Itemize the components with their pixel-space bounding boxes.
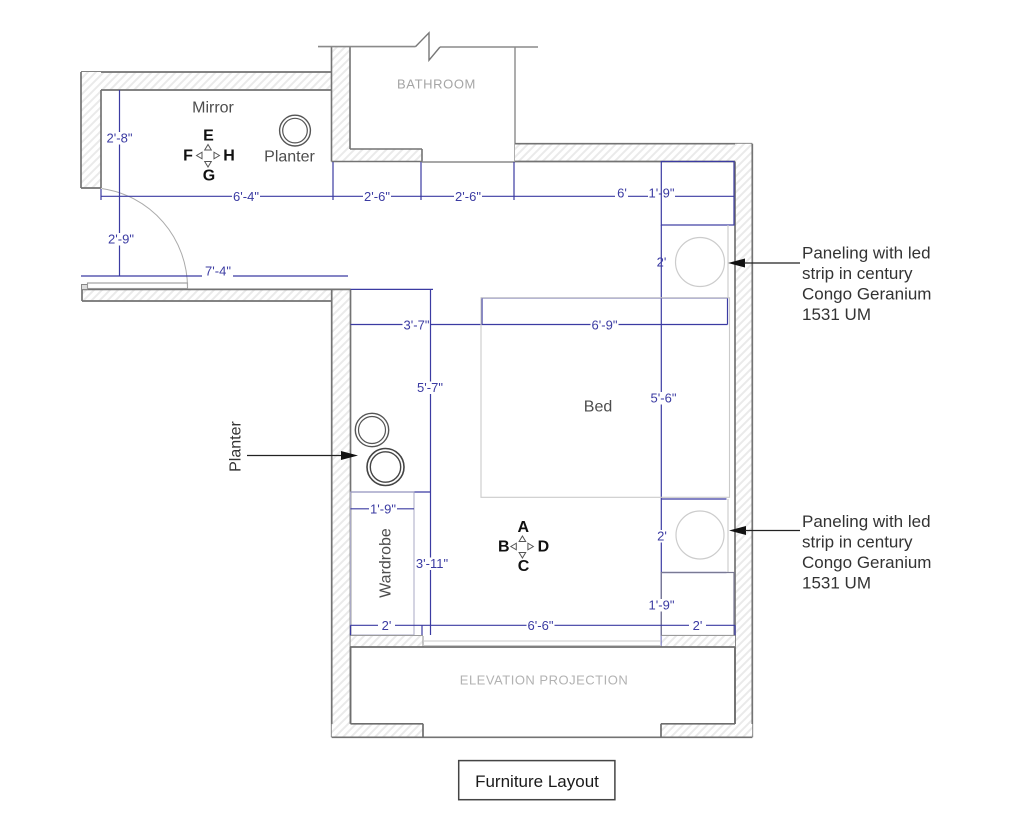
svg-text:6'-9": 6'-9"	[592, 318, 618, 333]
svg-text:Planter: Planter	[228, 420, 245, 471]
svg-text:Planter: Planter	[264, 149, 315, 166]
svg-text:H: H	[223, 148, 235, 165]
svg-text:7'-4": 7'-4"	[205, 264, 231, 279]
svg-text:6': 6'	[617, 186, 627, 201]
svg-text:5'-6": 5'-6"	[651, 391, 677, 406]
svg-text:1'-9": 1'-9"	[649, 598, 675, 613]
svg-text:BATHROOM: BATHROOM	[397, 77, 476, 92]
svg-text:1'-9": 1'-9"	[370, 502, 396, 517]
svg-text:6'-6": 6'-6"	[528, 618, 554, 633]
svg-text:3'-7": 3'-7"	[404, 318, 430, 333]
svg-text:2': 2'	[657, 529, 667, 544]
svg-text:D: D	[538, 539, 550, 556]
svg-text:2'-8": 2'-8"	[107, 131, 133, 146]
svg-text:A: A	[518, 519, 530, 536]
svg-text:E: E	[203, 128, 214, 145]
svg-text:Paneling with led: Paneling with led	[802, 512, 931, 531]
svg-text:3'-11": 3'-11"	[416, 556, 449, 571]
svg-text:C: C	[518, 558, 530, 575]
svg-text:2': 2'	[382, 618, 392, 633]
svg-text:1531 UM: 1531 UM	[802, 305, 871, 324]
svg-text:2': 2'	[693, 618, 703, 633]
svg-text:Furniture Layout: Furniture Layout	[475, 772, 599, 791]
svg-text:G: G	[203, 168, 215, 185]
svg-text:6'-4": 6'-4"	[233, 189, 259, 204]
svg-text:Mirror: Mirror	[192, 100, 234, 117]
svg-text:Congo Geranium: Congo Geranium	[802, 553, 931, 572]
svg-text:2'-6": 2'-6"	[364, 189, 390, 204]
svg-text:ELEVATION PROJECTION: ELEVATION PROJECTION	[460, 673, 628, 688]
svg-text:strip in century: strip in century	[802, 533, 913, 552]
svg-text:1531 UM: 1531 UM	[802, 574, 871, 593]
svg-text:Wardrobe: Wardrobe	[378, 528, 395, 598]
svg-text:Congo Geranium: Congo Geranium	[802, 285, 931, 304]
svg-text:Bed: Bed	[584, 399, 612, 416]
svg-text:Paneling with led: Paneling with led	[802, 244, 931, 263]
svg-text:2'-9": 2'-9"	[108, 232, 134, 247]
svg-text:strip in century: strip in century	[802, 264, 913, 283]
svg-text:5'-7": 5'-7"	[417, 380, 443, 395]
svg-text:F: F	[183, 148, 193, 165]
svg-text:B: B	[498, 539, 510, 556]
svg-text:2'-6": 2'-6"	[455, 189, 481, 204]
